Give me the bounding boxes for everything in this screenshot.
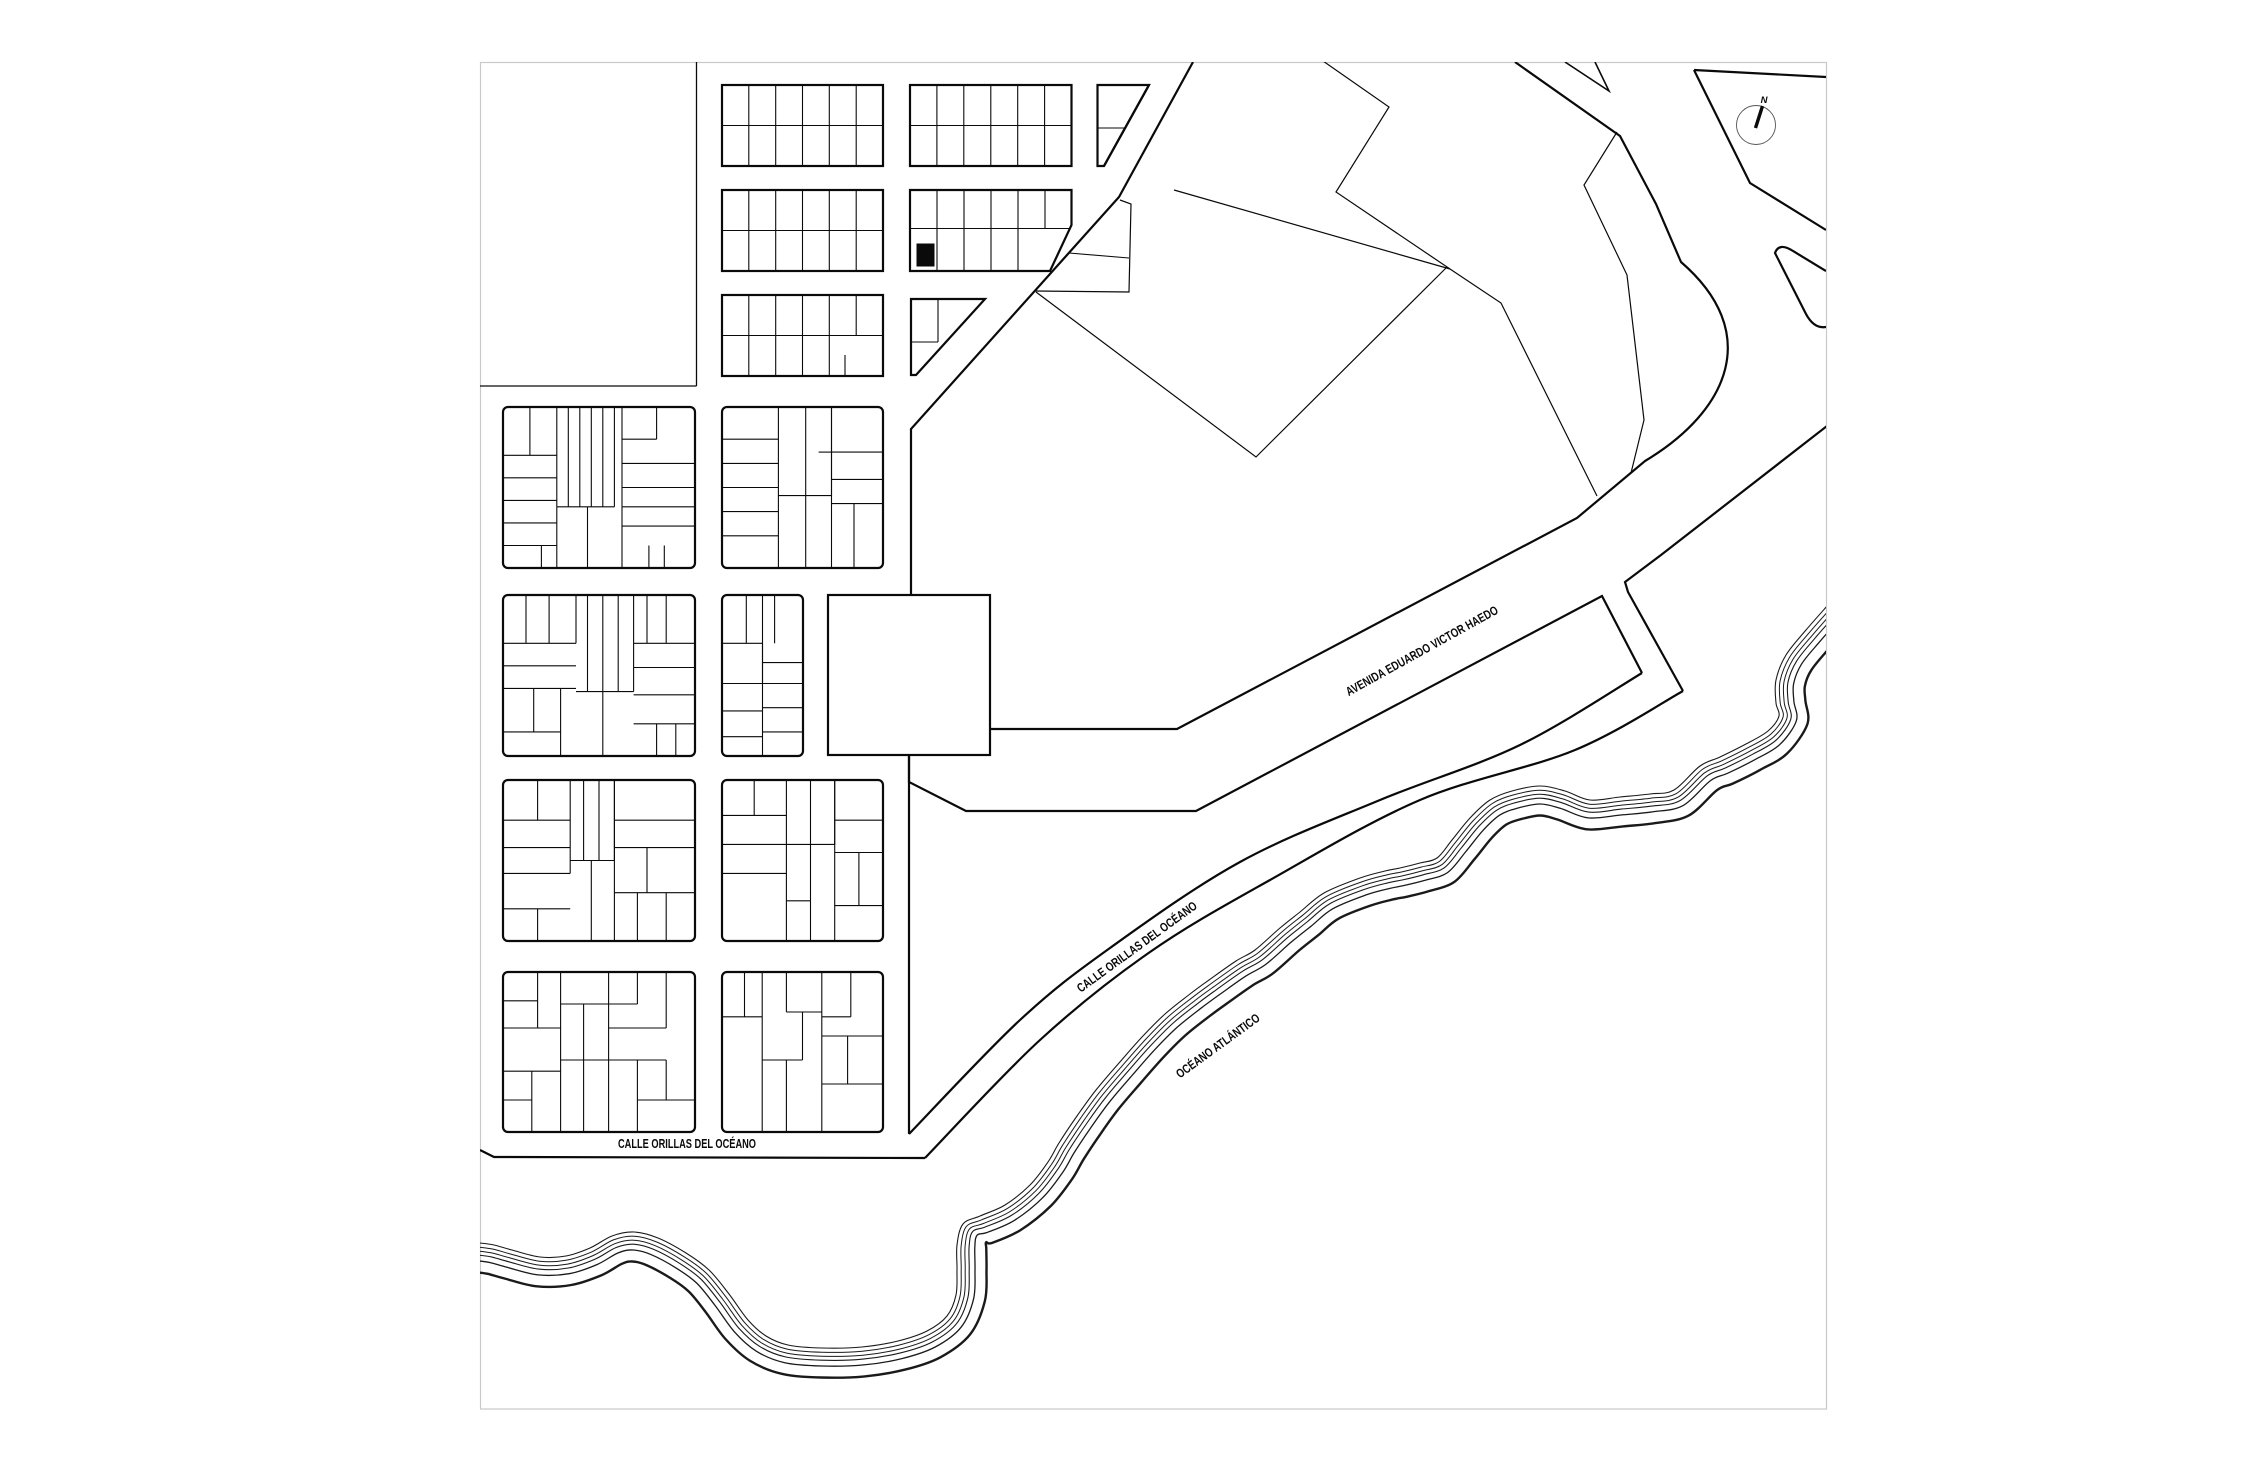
svg-text:N: N xyxy=(1761,95,1769,106)
svg-text:CALLE ORILLAS DEL OCÉANO: CALLE ORILLAS DEL OCÉANO xyxy=(618,1136,756,1151)
